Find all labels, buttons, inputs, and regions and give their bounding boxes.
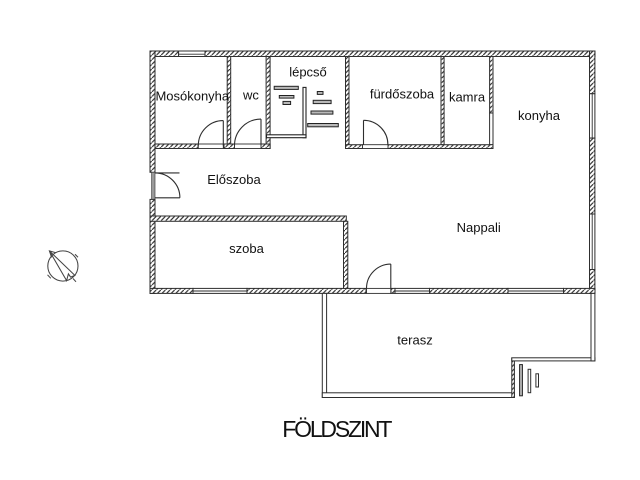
svg-text:FÖLDSZINT: FÖLDSZINT [282, 416, 392, 442]
svg-text:Mosókonyha: Mosókonyha [155, 89, 229, 104]
svg-text:konyha: konyha [518, 108, 561, 123]
svg-text:Nappali: Nappali [457, 220, 501, 235]
svg-text:terasz: terasz [397, 333, 432, 348]
svg-text:Előszoba: Előszoba [207, 172, 261, 187]
svg-text:wc: wc [242, 88, 259, 103]
svg-text:fürdőszoba: fürdőszoba [370, 87, 435, 102]
svg-text:lépcső: lépcső [289, 65, 327, 80]
svg-text:kamra: kamra [449, 90, 486, 105]
svg-text:szoba: szoba [229, 241, 264, 256]
